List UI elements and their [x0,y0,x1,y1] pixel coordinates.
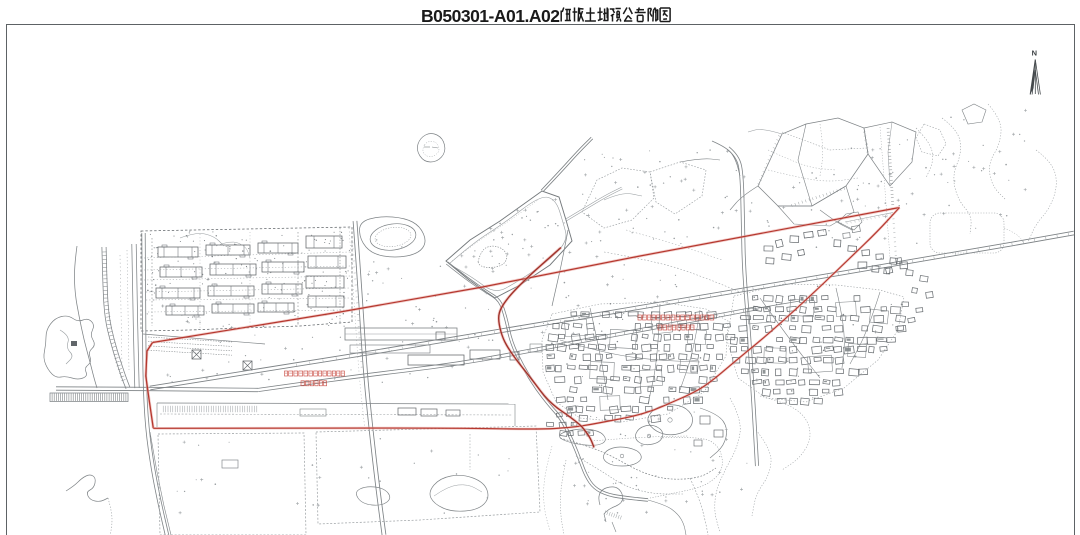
svg-text:N: N [1032,49,1037,58]
svg-text:B050301-A01.A02: B050301-A01.A02 [421,6,560,26]
